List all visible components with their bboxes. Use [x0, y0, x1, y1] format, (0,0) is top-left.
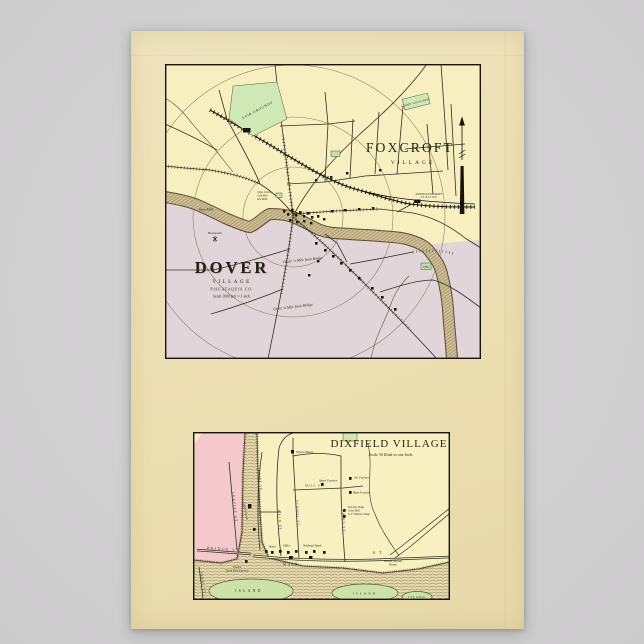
- scale-bar: [460, 166, 465, 214]
- dover-county: PISCATAQUIS CO.: [210, 288, 253, 292]
- main-st2-label: S T.: [373, 551, 385, 555]
- hamlet-label: Bowerania: [208, 231, 222, 235]
- foxcroft-title: FOXCROFT: [366, 140, 454, 155]
- dixfield-map: DIXFIELD VILLAGE Scale 30 Rods to one In…: [193, 432, 450, 600]
- church-green: [276, 193, 282, 198]
- map-poster: FOXCROFT VILLAGE DOVER VILLAGE PISCATAQU…: [131, 31, 524, 629]
- park-green: [331, 151, 340, 157]
- depot-building: [243, 128, 251, 133]
- trask-label-2: Tooth Pick Factory: [225, 569, 249, 573]
- station-building: [414, 200, 421, 204]
- woolen-shop-label: S. F. Woolen Shop: [348, 512, 370, 516]
- tin-factory-label: Tin Factory: [354, 476, 370, 480]
- dixfield-title: DIXFIELD VILLAGE: [331, 438, 448, 450]
- national-bank-label: National Bank: [302, 544, 322, 548]
- dover-foxcroft-svg: FOXCROFT VILLAGE DOVER VILLAGE PISCATAQU…: [165, 64, 481, 359]
- station-label-2: STATION: [421, 196, 438, 199]
- dover-title: DOVER: [195, 258, 270, 277]
- island-label-2: ISLAND: [353, 592, 377, 596]
- dover-subtitle: VILLAGE: [212, 279, 251, 285]
- rake-factory-label: Rake Factory: [352, 491, 371, 495]
- mill-label-2: Grist Mill: [257, 195, 268, 198]
- school-house-label: School House: [296, 450, 314, 454]
- mill-st-label: MILL ST.: [305, 484, 325, 488]
- spool-factory-label: Spool Factory: [319, 479, 338, 483]
- dover-scale: Scale 1600 feet = 1 inch.: [213, 295, 251, 299]
- cemetery-label: CEM.: [423, 266, 430, 269]
- main-st-label: MAIN: [283, 563, 299, 567]
- dover-foxcroft-map: FOXCROFT VILLAGE DOVER VILLAGE PISCATAQU…: [165, 64, 481, 359]
- mill-label-1: Cong. Church: [257, 191, 272, 194]
- wilson-label-2: House: [388, 563, 397, 567]
- mill-label-3: Saw Mills: [257, 198, 267, 201]
- hotel-label: Hotel: [268, 545, 276, 549]
- office-label: Office: [283, 544, 291, 548]
- island-label-1: ISLAND: [235, 589, 263, 593]
- foxcroft-subtitle: VILLAGE: [391, 160, 435, 166]
- island-label-3: ISLAND: [408, 596, 425, 599]
- dixfield-svg: DIXFIELD VILLAGE Scale 30 Rods to one In…: [193, 432, 450, 600]
- dixfield-scale: Scale 30 Rods to one Inch.: [369, 452, 414, 457]
